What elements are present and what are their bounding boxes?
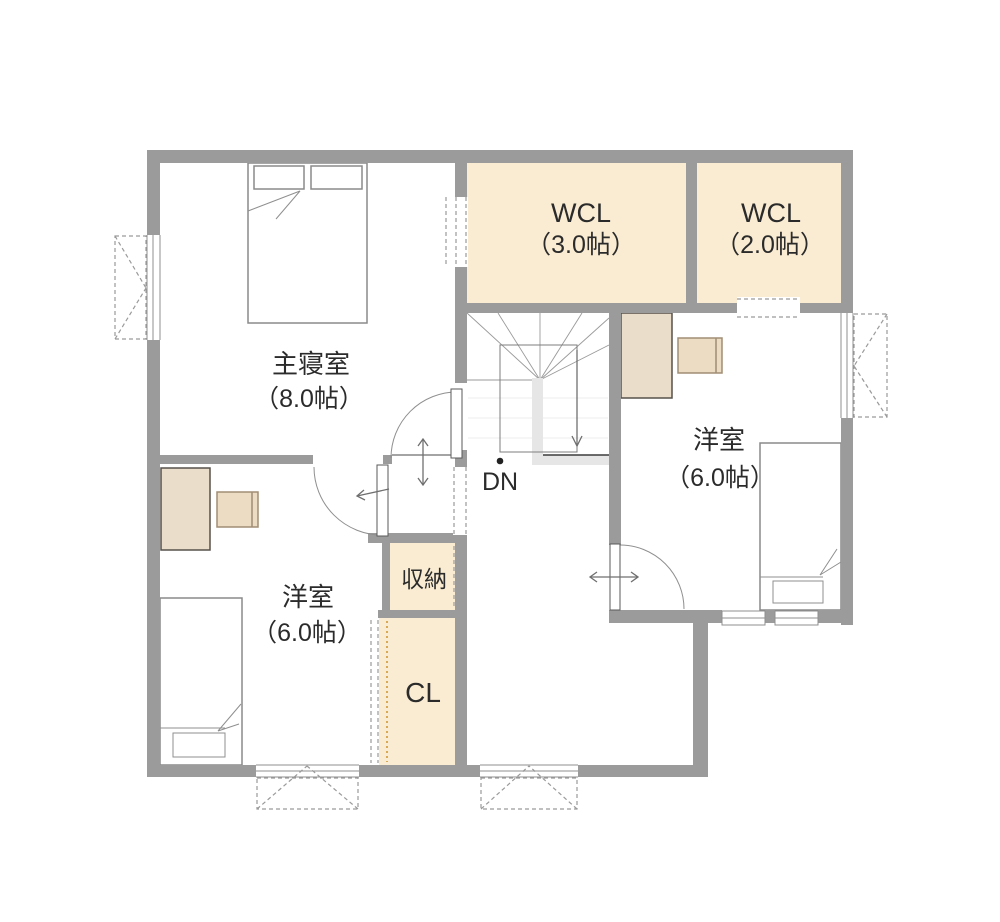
wall-hall-left [455,543,467,765]
wall-rightroom-left [609,313,621,545]
wall-master-right-1 [455,163,467,197]
wcl2-size: （2.0帖） [715,231,825,259]
closet-label: CL [405,677,441,708]
wall-right-lower [841,418,853,625]
right-room-label: 洋室 [693,425,745,455]
wall-right-upper [841,150,853,313]
wall-rightroom-bottom-3 [818,610,853,623]
wall-hall-right [693,623,708,777]
wall-cl-top [378,610,467,618]
master-bedroom-size: （8.0帖） [254,385,364,413]
stair-rail-bottom [543,455,609,465]
wall-rightroom-bottom-1 [609,610,722,623]
wall-bottom-3 [578,765,708,777]
master-bedroom-label: 主寝室 [272,349,350,379]
wall-left-lower [147,340,160,777]
left-room-size: （6.0帖） [252,619,362,647]
left-room-label: 洋室 [282,582,334,612]
wall-master-bottom [148,455,313,464]
stair-start-dot [497,458,504,465]
right-room-size: （6.0帖） [665,464,775,492]
wall-storage-left [382,543,390,610]
wcl3-size: （3.0帖） [526,231,636,259]
wcl2-doorway [737,297,800,319]
wcl3-label: WCL [551,198,611,228]
desk-left-room [161,468,210,550]
wall-master-right-2 [455,267,467,383]
wall-wcl-bottom-2 [800,303,841,313]
desk-right-room [621,313,672,398]
wall-rightroom-bottom-2 [765,610,775,623]
storage-label: 収納 [401,566,447,592]
wall-wcl-divider [686,163,697,303]
floor-plan-drawing: 主寝室 （8.0帖） WCL （3.0帖） WCL （2.0帖） 洋室 （6.0… [0,0,1000,922]
stairs-down-label: DN [482,468,518,496]
floor-plan: 主寝室 （8.0帖） WCL （3.0帖） WCL （2.0帖） 洋室 （6.0… [0,0,1000,922]
wall-top [148,150,853,163]
wall-wcl-bottom-1 [455,303,737,313]
wall-bottom-1 [147,765,256,777]
wcl2-label: WCL [741,198,801,228]
wall-left-upper [147,150,160,235]
wall-bottom-2 [359,765,480,777]
